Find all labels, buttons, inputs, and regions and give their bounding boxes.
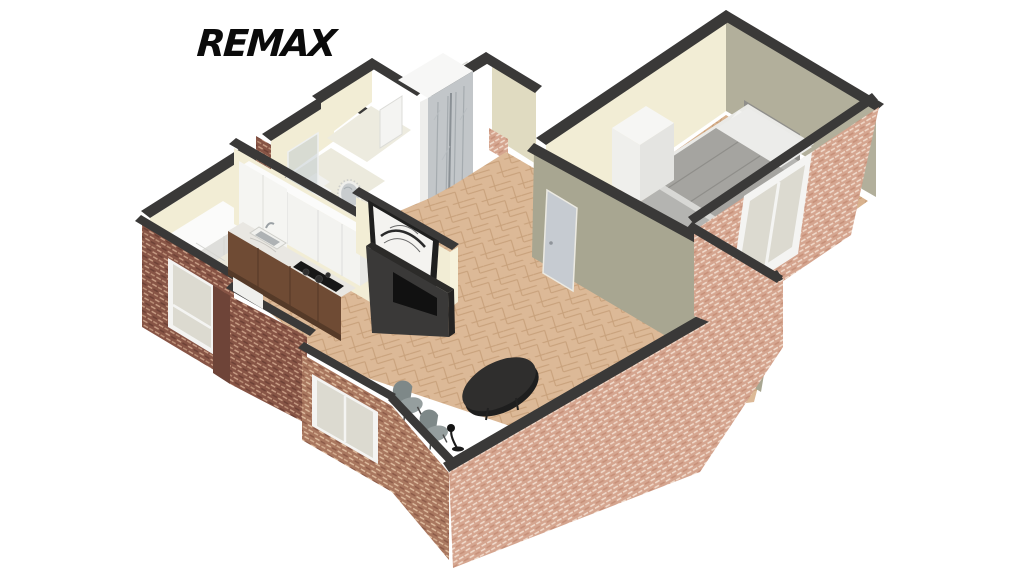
tv-console-side [448,289,455,337]
floorplan-canvas: REMAX [0,0,1024,576]
burner [326,273,330,277]
brick-pier-side [213,285,230,384]
burner [303,269,309,275]
closet-door [380,96,402,148]
floorplan-render: REMAX [0,0,1024,576]
wardrobe-edge [420,98,428,217]
door-handle [549,241,553,245]
top-closet-room [312,58,424,162]
floor-lamp [447,424,464,452]
burner [316,276,323,283]
bedroom-door [543,190,577,291]
remax-logo: REMAX [195,22,340,65]
